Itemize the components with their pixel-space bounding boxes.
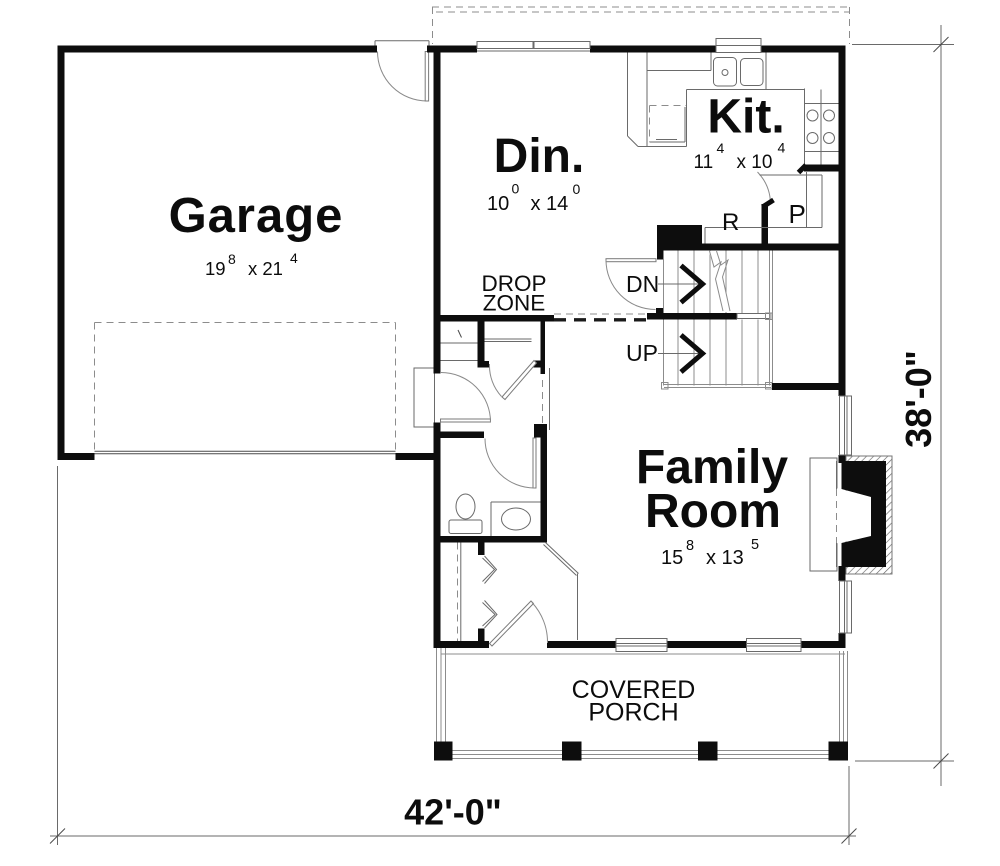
svg-text:Garage: Garage <box>169 189 344 243</box>
svg-text:x 14: x 14 <box>531 193 569 215</box>
svg-text:11: 11 <box>694 152 714 173</box>
svg-text:R: R <box>722 209 739 236</box>
svg-text:15: 15 <box>661 547 683 569</box>
svg-text:Din.: Din. <box>494 130 585 183</box>
svg-text:x 21: x 21 <box>248 258 283 279</box>
svg-text:Room: Room <box>645 485 781 538</box>
svg-text:38'-0": 38'-0" <box>898 350 939 448</box>
svg-text:8: 8 <box>228 251 236 267</box>
svg-text:5: 5 <box>751 537 759 553</box>
svg-text:4: 4 <box>778 140 786 156</box>
svg-text:42'-0": 42'-0" <box>404 792 502 833</box>
svg-text:PORCH: PORCH <box>588 699 678 727</box>
svg-text:19: 19 <box>205 258 226 279</box>
svg-text:4: 4 <box>290 250 298 266</box>
svg-text:x 10: x 10 <box>737 152 773 173</box>
svg-text:DN: DN <box>626 271 659 297</box>
svg-text:8: 8 <box>686 538 694 554</box>
svg-text:P: P <box>789 199 806 229</box>
svg-text:4: 4 <box>717 140 725 156</box>
svg-text:ZONE: ZONE <box>483 291 546 316</box>
svg-text:x 13: x 13 <box>706 547 744 569</box>
svg-text:0: 0 <box>573 181 581 197</box>
svg-text:Kit.: Kit. <box>707 91 784 144</box>
svg-text:UP: UP <box>626 340 658 366</box>
svg-text:0: 0 <box>512 181 520 197</box>
svg-text:10: 10 <box>487 193 509 215</box>
